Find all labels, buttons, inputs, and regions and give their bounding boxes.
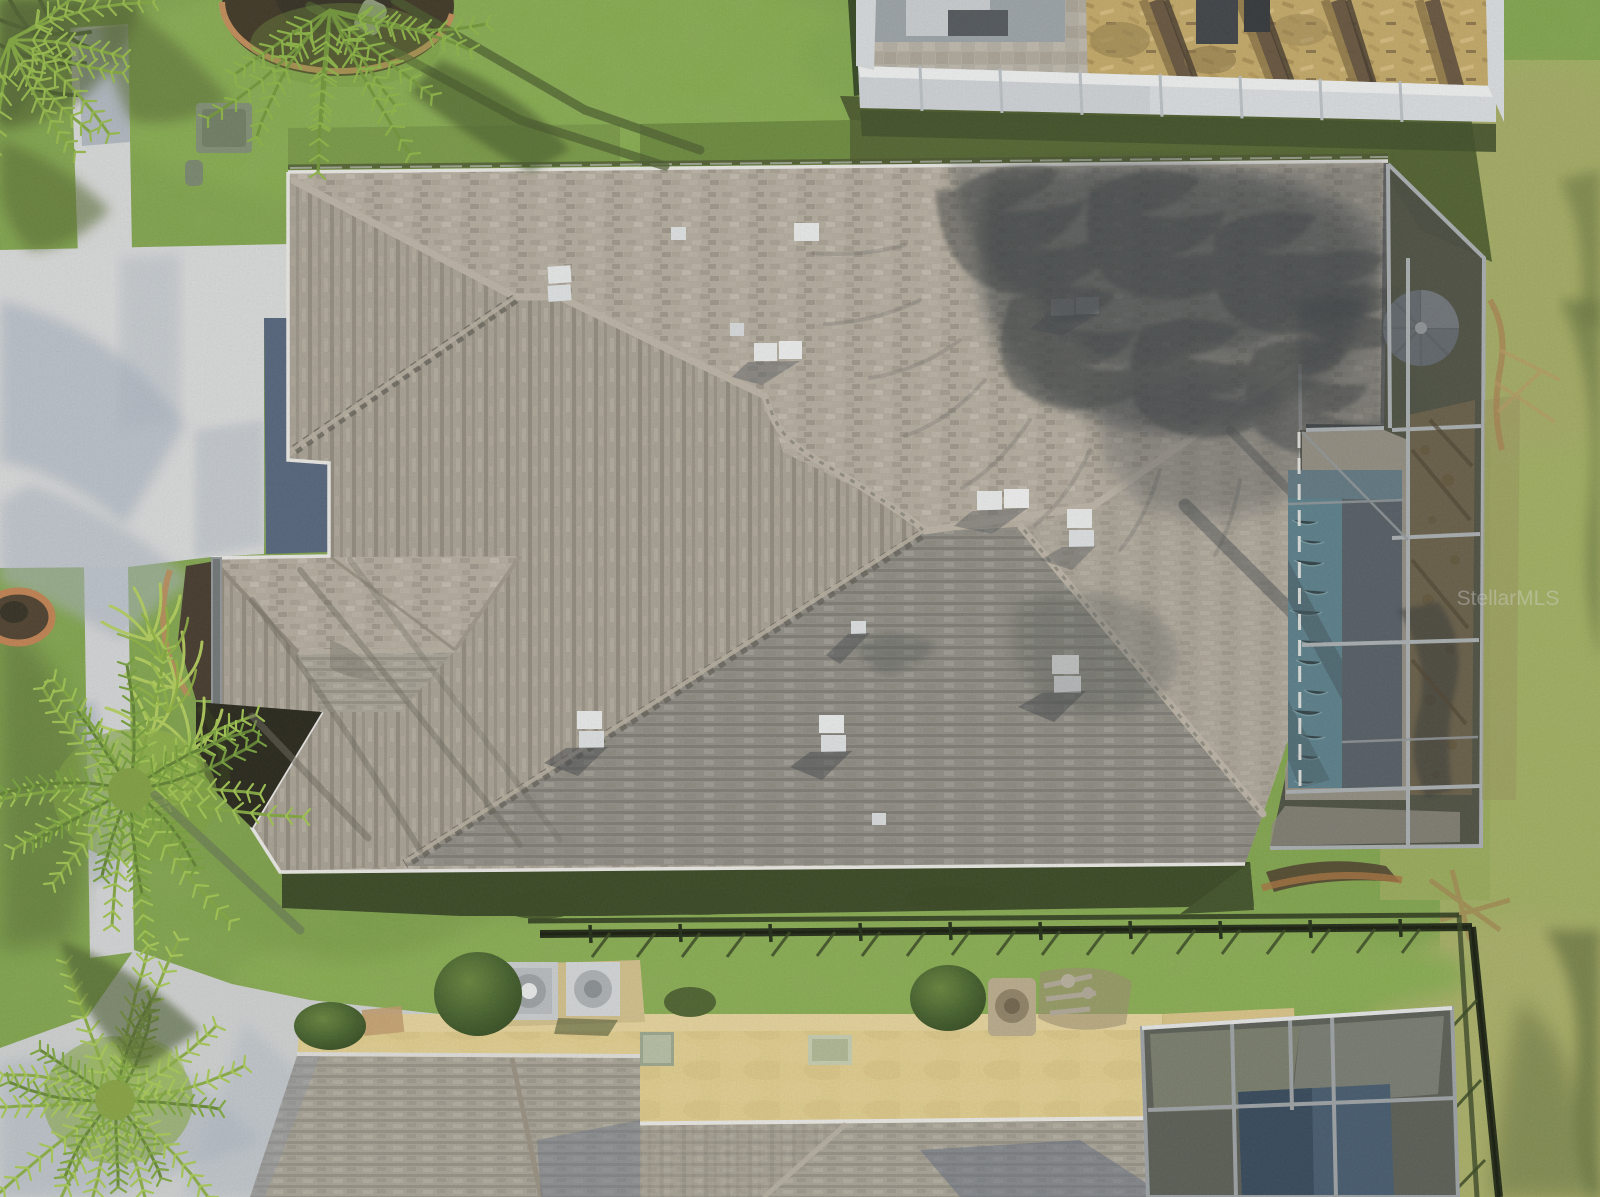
svg-text:StellarMLS: StellarMLS [1457, 587, 1560, 610]
